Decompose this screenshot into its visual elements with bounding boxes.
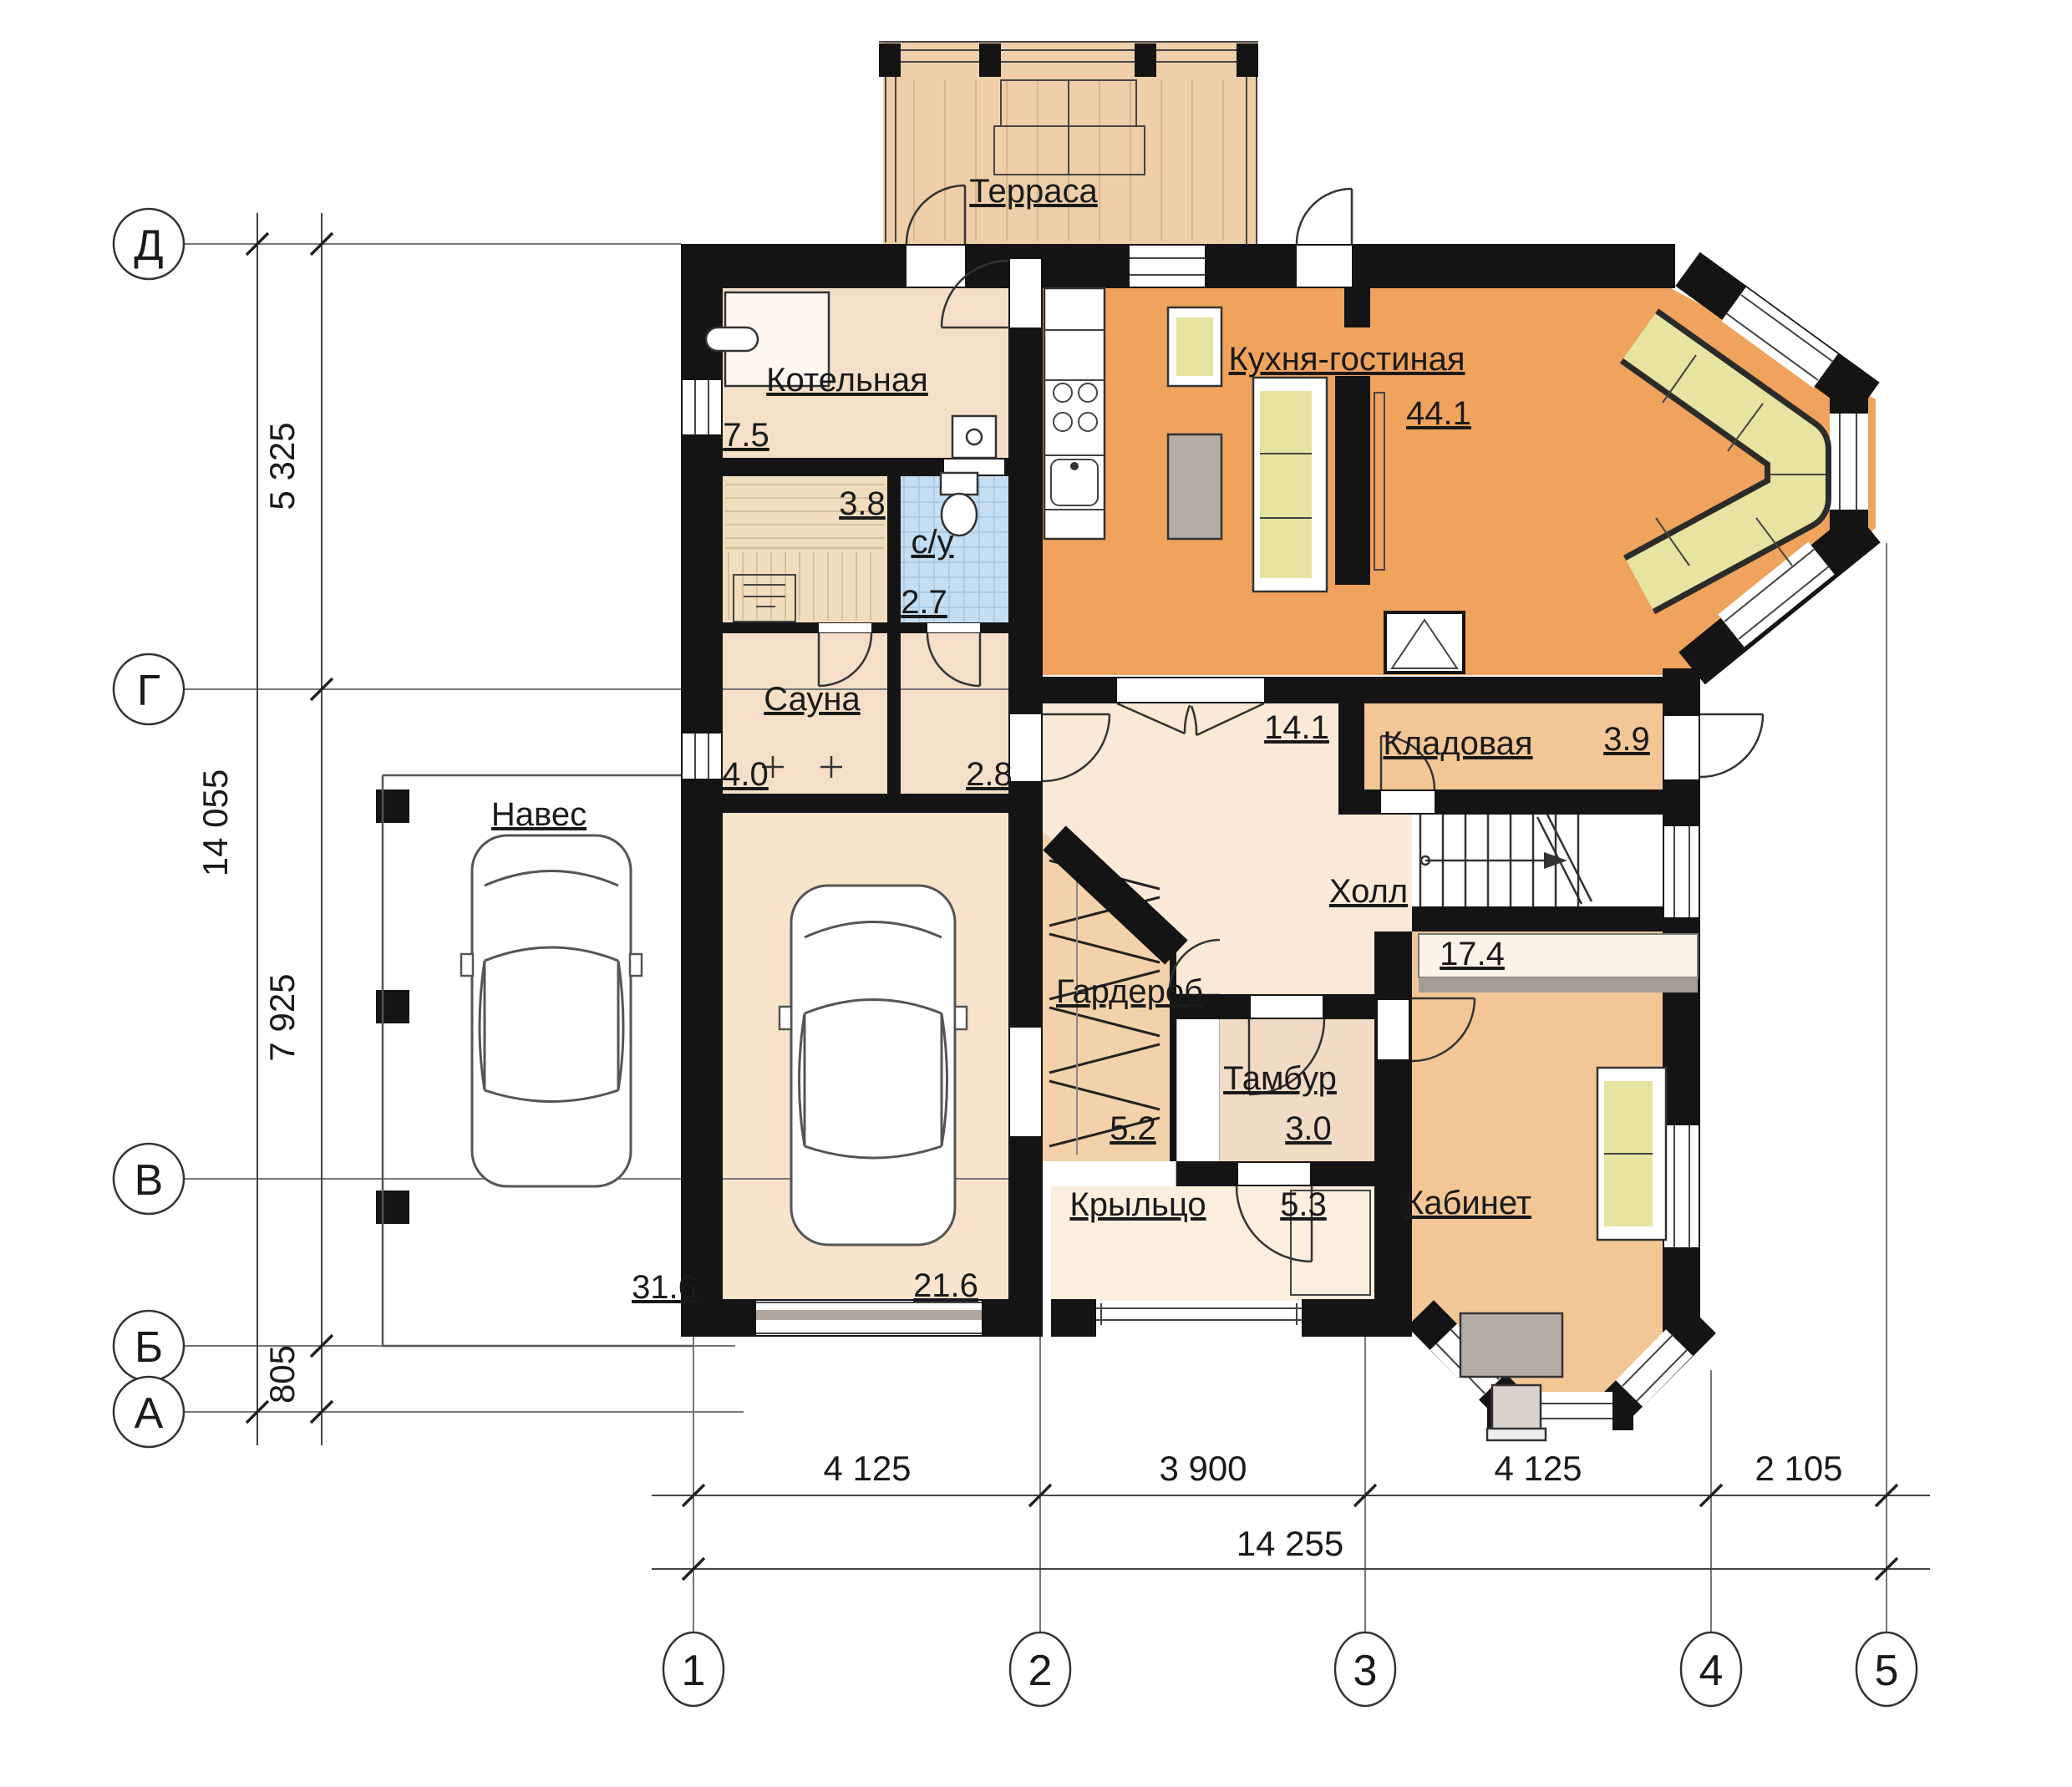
stair-window xyxy=(1664,826,1699,917)
porch-door-opening xyxy=(1238,1163,1310,1185)
boiler-pipe xyxy=(706,327,758,351)
dim-v-span-3: 805 xyxy=(262,1345,302,1404)
kitchen-hall-opening xyxy=(1117,678,1264,702)
corridor-hall-door-opening xyxy=(1010,714,1041,781)
garage-gate-leaf xyxy=(756,1310,982,1320)
label-garage-area: 21.6 xyxy=(913,1267,978,1304)
dim-h-total: 14 255 xyxy=(1237,1524,1343,1563)
label-pantry-area: 3.9 xyxy=(1603,721,1650,758)
label-kitchen-area: 44.1 xyxy=(1406,395,1471,432)
axis-col-5: 5 xyxy=(1875,1647,1899,1695)
axis-row-a: А xyxy=(135,1389,164,1438)
label-terrace: Терраса xyxy=(969,173,1098,210)
dim-v-span-1: 5 325 xyxy=(262,422,302,510)
kitchen-chimney xyxy=(1344,288,1370,327)
label-boiler: Котельная xyxy=(766,362,928,399)
sauna-door-opening xyxy=(819,623,871,632)
label-sauna-area: 4.0 xyxy=(722,756,769,793)
sauna-window xyxy=(683,734,721,779)
car-garage-icon xyxy=(780,886,967,1245)
floor-plan-sheet: Терраса Котельная 7.5 3.8 с/у 2.7 Сауна … xyxy=(0,0,2072,1787)
dim-h-span-2: 3 900 xyxy=(1159,1449,1247,1488)
bathroom-door-opening xyxy=(927,623,980,632)
kitchen-counter xyxy=(1044,288,1105,539)
coffee-table xyxy=(1168,434,1221,539)
dim-v-span-2: 7 925 xyxy=(262,973,302,1061)
label-sauna: Сауна xyxy=(764,681,861,718)
terrace-floor xyxy=(883,42,1257,244)
axis-col-3: 3 xyxy=(1353,1647,1378,1695)
label-wardrobe-area: 5.2 xyxy=(1110,1110,1156,1147)
office-desk xyxy=(1460,1313,1562,1377)
boiler-terrace-door-opening xyxy=(906,246,965,287)
label-vestibule: Тамбур xyxy=(1223,1060,1337,1097)
fireplace xyxy=(1385,612,1464,673)
axis-col-4: 4 xyxy=(1699,1647,1724,1695)
label-office-area: 17.4 xyxy=(1440,936,1505,972)
axis-col-2: 2 xyxy=(1028,1647,1053,1695)
label-vestibule-area: 3.0 xyxy=(1285,1110,1332,1147)
axis-row-d: Д xyxy=(134,221,163,270)
label-corridor-area: 2.8 xyxy=(966,756,1013,793)
terrace-door-opening xyxy=(1297,246,1352,287)
label-bathroom: с/у xyxy=(911,524,953,561)
dim-h-span-3: 4 125 xyxy=(1494,1449,1582,1488)
office-closet-front xyxy=(1419,977,1698,992)
dim-h-span-1: 4 125 xyxy=(823,1449,911,1488)
label-bathroom-area: 2.7 xyxy=(901,584,947,621)
office-door-opening xyxy=(1378,1000,1409,1059)
label-boiler-area: 7.5 xyxy=(723,417,769,454)
office-window xyxy=(1664,1125,1699,1247)
label-porch: Крыльцо xyxy=(1069,1186,1206,1223)
dim-v-total: 14 055 xyxy=(196,769,235,876)
bay-window-right xyxy=(1830,414,1868,510)
boiler-window xyxy=(683,380,721,434)
floor-plan-drawing: Терраса Котельная 7.5 3.8 с/у 2.7 Сауна … xyxy=(0,0,2072,1787)
pantry-door-opening xyxy=(1381,791,1435,813)
porch-railing-gap xyxy=(1096,1301,1302,1335)
vestibule-door-opening xyxy=(1251,996,1323,1018)
axis-row-g: Г xyxy=(137,667,160,715)
boiler-door-opening xyxy=(1010,259,1041,327)
label-wardrobe: Гардероб xyxy=(1056,973,1203,1010)
label-office: Кабинет xyxy=(1404,1185,1531,1221)
label-carport: Навес xyxy=(491,796,587,833)
vestibule-niche xyxy=(1176,994,1220,1186)
axis-col-1: 1 xyxy=(682,1647,706,1695)
axis-row-b: Б xyxy=(135,1323,163,1372)
office-chair xyxy=(1492,1385,1541,1434)
label-porch-area: 5.3 xyxy=(1280,1186,1327,1223)
back-door-opening xyxy=(1664,716,1699,779)
label-sauna-cabin-area: 3.8 xyxy=(839,485,886,522)
label-hall-area: 14.1 xyxy=(1264,709,1329,746)
label-kitchen: Кухня-гостиная xyxy=(1229,341,1465,378)
label-hall: Холл xyxy=(1329,873,1408,910)
axis-row-v: В xyxy=(135,1156,164,1205)
label-carport-area: 31.6 xyxy=(632,1269,697,1306)
car-carport-icon xyxy=(461,835,642,1186)
tv-wall xyxy=(1335,376,1370,585)
dim-h-span-4: 2 105 xyxy=(1755,1449,1842,1488)
garage-wardrobe-opening xyxy=(1010,1028,1041,1136)
label-pantry: Кладовая xyxy=(1383,725,1532,762)
kitchen-window xyxy=(1130,246,1205,287)
